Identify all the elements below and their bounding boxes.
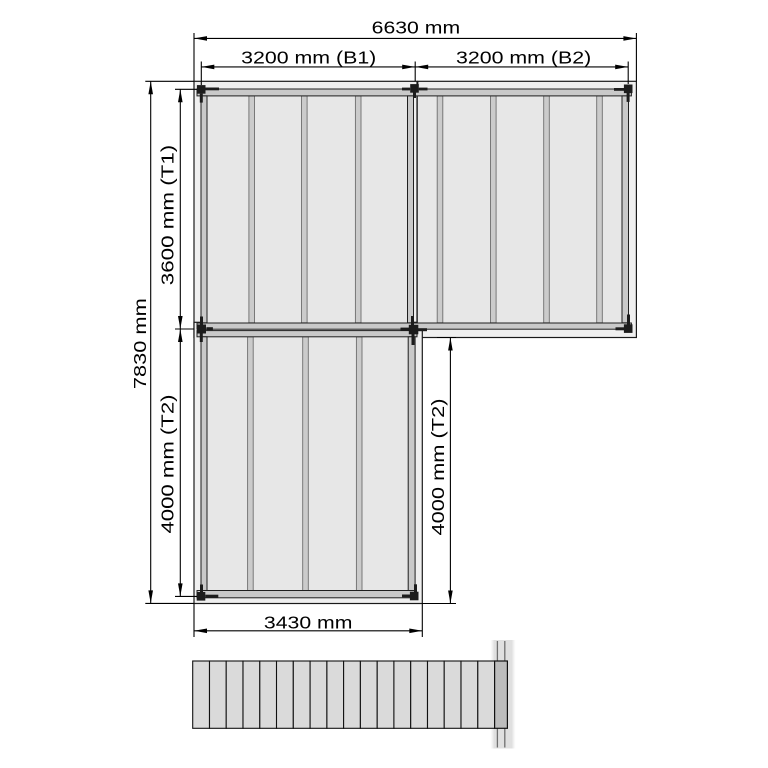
svg-text:3200 mm (B1): 3200 mm (B1) xyxy=(241,48,376,68)
svg-text:6630 mm: 6630 mm xyxy=(372,18,461,38)
svg-text:3430 mm: 3430 mm xyxy=(264,612,353,632)
svg-text:3600 mm (T1): 3600 mm (T1) xyxy=(158,145,178,286)
svg-text:4000 mm (T2): 4000 mm (T2) xyxy=(158,395,178,534)
svg-text:7830 mm: 7830 mm xyxy=(130,298,150,389)
svg-text:4000 mm (T2): 4000 mm (T2) xyxy=(428,399,448,536)
svg-text:3200 mm (B2): 3200 mm (B2) xyxy=(456,48,591,68)
